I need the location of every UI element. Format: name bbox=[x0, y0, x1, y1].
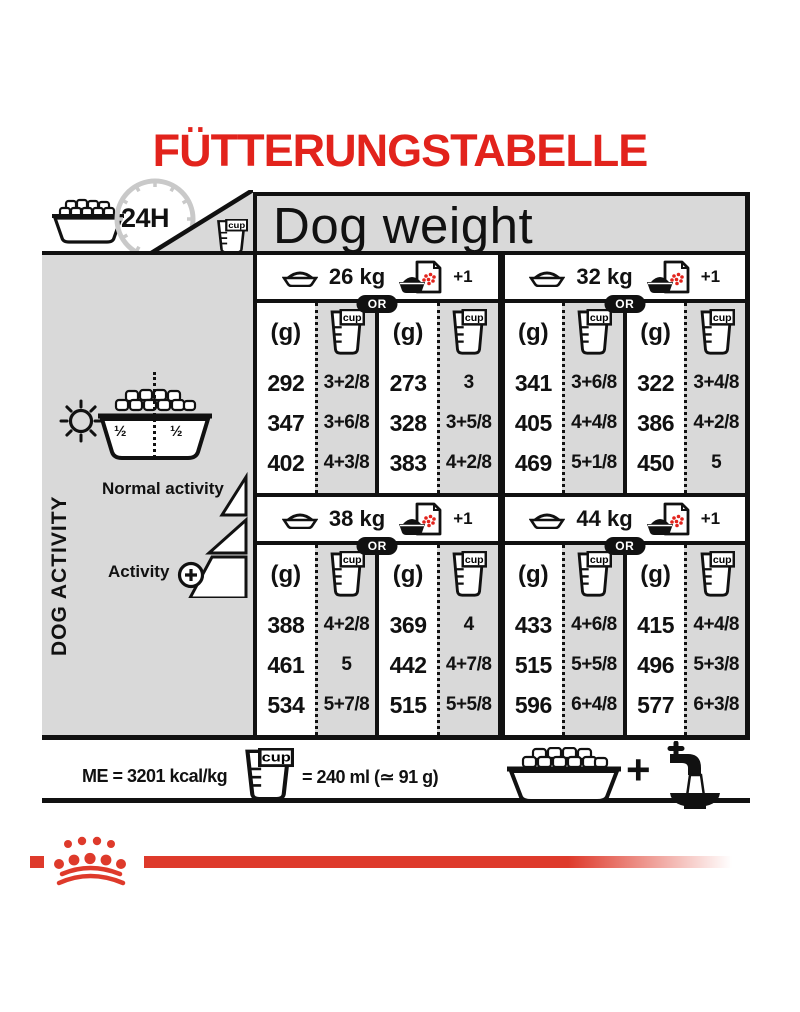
values-44kg: (g) 433 515 596 cup bbox=[505, 545, 746, 735]
cups-cell: 6+3/8 bbox=[687, 685, 745, 725]
cups-column: cup 3+6/8 4+4/8 5+1/8 bbox=[562, 303, 623, 493]
grams-header: (g) bbox=[518, 319, 549, 347]
cups-cell: 3+2/8 bbox=[318, 363, 376, 403]
grams-column: (g) 433 515 596 bbox=[505, 545, 563, 735]
bowl-half-right-label: ½ bbox=[170, 423, 183, 440]
measuring-cup-icon: cup bbox=[450, 551, 487, 599]
dry-plus-pouch-columns: (g) 369 442 515 cup bbox=[379, 545, 497, 735]
cups-cell: 5 bbox=[318, 645, 376, 685]
cups-column: cup 3+4/8 4+2/8 5 bbox=[684, 303, 745, 493]
svg-text:cup: cup bbox=[590, 312, 609, 324]
dry-only-columns: (g) 388 461 534 cup bbox=[257, 545, 379, 735]
water-tap-icon bbox=[656, 741, 720, 809]
feeding-table: 26 kg +1 OR bbox=[253, 255, 750, 735]
cups-column: cup 3+2/8 3+6/8 4+3/8 bbox=[315, 303, 376, 493]
dog-activity-title: DOG ACTIVITY bbox=[48, 464, 72, 656]
grams-cell: 469 bbox=[505, 443, 563, 483]
bowl-plus-pouch-icon bbox=[644, 259, 690, 296]
cups-cell: 4 bbox=[440, 605, 498, 645]
weight-value: 38 kg bbox=[329, 506, 385, 532]
dog-activity-sidebar: ½ ½ DOG ACTIVITY Normal activity Activit… bbox=[42, 255, 253, 735]
grams-cell: 383 bbox=[379, 443, 437, 483]
weight-value: 32 kg bbox=[576, 264, 632, 290]
grams-cell: 461 bbox=[257, 645, 315, 685]
weight-header-row: 38 kg +1 OR bbox=[257, 497, 745, 545]
dog-weight-label: Dog weight bbox=[273, 196, 533, 255]
svg-text:cup: cup bbox=[228, 221, 245, 230]
values-32kg: (g) 341 405 469 cup bbox=[505, 303, 746, 493]
grams-cell: 515 bbox=[379, 685, 437, 725]
cups-cell: 4+4/8 bbox=[565, 403, 623, 443]
grams-cell: 496 bbox=[627, 645, 685, 685]
bowl-plus-pouch-icon bbox=[396, 259, 442, 296]
values-38kg: (g) 388 461 534 cup bbox=[257, 545, 505, 735]
cups-column: cup 4+2/8 5 5+7/8 bbox=[315, 545, 376, 735]
activity-label: Activity bbox=[108, 562, 169, 582]
bowl-half-left-label: ½ bbox=[114, 423, 127, 440]
grams-header: (g) bbox=[270, 319, 301, 347]
dry-plus-pouch-columns: (g) 273 328 383 cup bbox=[379, 303, 497, 493]
activity-triangle-small bbox=[222, 477, 246, 515]
weight-header-38kg: 38 kg +1 OR bbox=[257, 497, 505, 541]
plus-circle-icon bbox=[176, 560, 206, 590]
weight-header-26kg: 26 kg +1 OR bbox=[257, 255, 505, 299]
measuring-cup-icon: cup bbox=[575, 551, 612, 599]
grams-header: (g) bbox=[640, 319, 671, 347]
grams-cell: 388 bbox=[257, 605, 315, 645]
grams-cell: 322 bbox=[627, 363, 685, 403]
cups-cell: 3 bbox=[440, 363, 498, 403]
measuring-cup-icon: cup bbox=[328, 551, 365, 599]
feeding-table-page: FÜTTERUNGSTABELLE 24H bbox=[0, 0, 800, 1012]
cups-column: cup 3 3+5/8 4+2/8 bbox=[437, 303, 498, 493]
grams-cell: 273 bbox=[379, 363, 437, 403]
grams-cell: 415 bbox=[627, 605, 685, 645]
cups-cell: 4+3/8 bbox=[318, 443, 376, 483]
grams-column: (g) 341 405 469 bbox=[505, 303, 563, 493]
grams-cell: 402 bbox=[257, 443, 315, 483]
grams-column: (g) 388 461 534 bbox=[257, 545, 315, 735]
metabolizable-energy-value: ME = 3201 kcal/kg bbox=[82, 766, 227, 787]
grams-header: (g) bbox=[393, 319, 424, 347]
grams-column: (g) 322 386 450 bbox=[627, 303, 685, 493]
svg-text:cup: cup bbox=[262, 751, 291, 765]
grams-cell: 405 bbox=[505, 403, 563, 443]
weight-header-32kg: 32 kg +1 OR bbox=[505, 255, 746, 299]
or-badge: OR bbox=[604, 537, 645, 555]
measuring-cup-icon: cup bbox=[575, 309, 612, 357]
cups-cell: 4+6/8 bbox=[565, 605, 623, 645]
weight-block-26-32: 26 kg +1 OR bbox=[257, 255, 745, 497]
dry-only-columns: (g) 433 515 596 cup bbox=[505, 545, 627, 735]
values-26kg: (g) 292 347 402 cup bbox=[257, 303, 505, 493]
cups-cell: 5+5/8 bbox=[440, 685, 498, 725]
activity-triangle-medium bbox=[209, 520, 246, 553]
plus-one-label: +1 bbox=[453, 267, 472, 287]
cups-cell: 3+4/8 bbox=[687, 363, 745, 403]
grams-header: (g) bbox=[518, 561, 549, 589]
cups-cell: 6+4/8 bbox=[565, 685, 623, 725]
or-badge: OR bbox=[357, 537, 398, 555]
plus-one-label: +1 bbox=[701, 509, 720, 529]
plus-sign: + bbox=[626, 752, 651, 788]
grams-cell: 369 bbox=[379, 605, 437, 645]
grams-cell: 347 bbox=[257, 403, 315, 443]
svg-text:cup: cup bbox=[590, 554, 609, 566]
dog-bowl-icon bbox=[282, 510, 318, 529]
cups-cell: 3+6/8 bbox=[318, 403, 376, 443]
measuring-cup-icon: cup bbox=[328, 309, 365, 357]
cups-column: cup 4 4+7/8 5+5/8 bbox=[437, 545, 498, 735]
weight-header-44kg: 44 kg +1 OR bbox=[505, 497, 746, 541]
kibble-bowl-icon bbox=[505, 747, 623, 805]
grams-cell: 341 bbox=[505, 363, 563, 403]
cup-equivalence-value: = 240 ml (≃ 91 g) bbox=[302, 767, 438, 788]
or-badge: OR bbox=[357, 295, 398, 313]
svg-text:cup: cup bbox=[343, 312, 362, 324]
measuring-cup-icon: cup bbox=[698, 551, 735, 599]
moon-icon bbox=[212, 398, 240, 434]
grams-header: (g) bbox=[393, 561, 424, 589]
weight-header-row: 26 kg +1 OR bbox=[257, 255, 745, 303]
dog-bowl-icon bbox=[529, 510, 565, 529]
cups-column: cup 4+6/8 5+5/8 6+4/8 bbox=[562, 545, 623, 735]
grams-cell: 433 bbox=[505, 605, 563, 645]
cups-cell: 4+4/8 bbox=[687, 605, 745, 645]
bowl-split-dotted-line bbox=[153, 372, 156, 458]
grams-cell: 515 bbox=[505, 645, 563, 685]
grams-cell: 328 bbox=[379, 403, 437, 443]
cups-cell: 4+2/8 bbox=[440, 443, 498, 483]
grams-cell: 534 bbox=[257, 685, 315, 725]
svg-text:cup: cup bbox=[343, 554, 362, 566]
red-divider-bar bbox=[144, 856, 750, 868]
bowl-plus-pouch-icon bbox=[644, 501, 690, 538]
cups-column: cup 4+4/8 5+3/8 6+3/8 bbox=[684, 545, 745, 735]
cups-cell: 5+3/8 bbox=[687, 645, 745, 685]
measuring-cup-icon: cup bbox=[242, 748, 294, 803]
values-row: (g) 388 461 534 cup bbox=[257, 545, 745, 735]
grams-column: (g) 369 442 515 bbox=[379, 545, 437, 735]
cups-cell: 5+1/8 bbox=[565, 443, 623, 483]
plus-one-label: +1 bbox=[453, 509, 472, 529]
grams-column: (g) 292 347 402 bbox=[257, 303, 315, 493]
dry-plus-pouch-columns: (g) 415 496 577 cup bbox=[627, 545, 745, 735]
footer-info-band: ME = 3201 kcal/kg cup = 240 ml (≃ 91 g) … bbox=[42, 735, 750, 803]
cups-cell: 4+2/8 bbox=[687, 403, 745, 443]
royal-canin-crown-logo bbox=[52, 834, 140, 886]
dog-weight-header: Dog weight bbox=[253, 192, 750, 255]
svg-text:cup: cup bbox=[465, 554, 484, 566]
dog-bowl-icon bbox=[282, 268, 318, 287]
dry-plus-pouch-columns: (g) 322 386 450 cup bbox=[627, 303, 745, 493]
grams-cell: 292 bbox=[257, 363, 315, 403]
grams-cell: 577 bbox=[627, 685, 685, 725]
grams-cell: 442 bbox=[379, 645, 437, 685]
dry-only-columns: (g) 341 405 469 cup bbox=[505, 303, 627, 493]
bowl-plus-pouch-icon bbox=[396, 501, 442, 538]
dry-only-columns: (g) 292 347 402 cup bbox=[257, 303, 379, 493]
grams-cell: 450 bbox=[627, 443, 685, 483]
cups-cell: 3+5/8 bbox=[440, 403, 498, 443]
cups-cell: 3+6/8 bbox=[565, 363, 623, 403]
svg-text:cup: cup bbox=[713, 312, 732, 324]
grams-header: (g) bbox=[640, 561, 671, 589]
svg-text:cup: cup bbox=[465, 312, 484, 324]
weight-value: 26 kg bbox=[329, 264, 385, 290]
grams-column: (g) 415 496 577 bbox=[627, 545, 685, 735]
measuring-cup-icon: cup bbox=[215, 219, 248, 255]
dog-bowl-icon bbox=[529, 268, 565, 287]
plus-one-label: +1 bbox=[701, 267, 720, 287]
grams-cell: 386 bbox=[627, 403, 685, 443]
grams-cell: 596 bbox=[505, 685, 563, 725]
measuring-cup-icon: cup bbox=[450, 309, 487, 357]
grams-header: (g) bbox=[270, 561, 301, 589]
red-divider-bar-left bbox=[30, 856, 44, 868]
weight-value: 44 kg bbox=[576, 506, 632, 532]
grams-column: (g) 273 328 383 bbox=[379, 303, 437, 493]
weight-block-38-44: 38 kg +1 OR bbox=[257, 497, 745, 735]
or-badge: OR bbox=[604, 295, 645, 313]
page-title: FÜTTERUNGSTABELLE bbox=[0, 125, 800, 177]
values-row: (g) 292 347 402 cup bbox=[257, 303, 745, 493]
cups-cell: 5+7/8 bbox=[318, 685, 376, 725]
cups-cell: 4+2/8 bbox=[318, 605, 376, 645]
cups-cell: 4+7/8 bbox=[440, 645, 498, 685]
cups-cell: 5 bbox=[687, 443, 745, 483]
svg-text:cup: cup bbox=[713, 554, 732, 566]
measuring-cup-icon: cup bbox=[698, 309, 735, 357]
cups-cell: 5+5/8 bbox=[565, 645, 623, 685]
